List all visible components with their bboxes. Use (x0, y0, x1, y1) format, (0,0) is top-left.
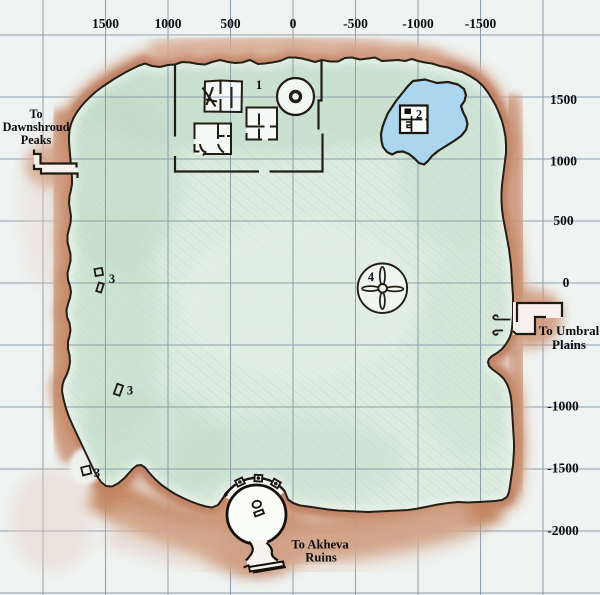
svg-text:To Akheva: To Akheva (291, 538, 349, 552)
svg-text:0: 0 (563, 275, 570, 290)
svg-text:1000: 1000 (550, 154, 577, 169)
svg-text:Plains: Plains (552, 337, 586, 352)
svg-text:1: 1 (256, 78, 262, 92)
svg-text:500: 500 (220, 16, 241, 31)
svg-text:-1000: -1000 (402, 16, 434, 31)
svg-text:2: 2 (416, 108, 422, 122)
svg-text:0: 0 (290, 16, 297, 31)
svg-text:To Umbral: To Umbral (539, 323, 600, 338)
svg-text:3: 3 (109, 272, 115, 286)
svg-text:3: 3 (127, 384, 133, 398)
svg-text:1500: 1500 (92, 16, 119, 31)
svg-text:Ruins: Ruins (305, 551, 337, 565)
svg-text:1000: 1000 (155, 16, 182, 31)
svg-text:-1500: -1500 (547, 461, 579, 476)
svg-text:-1000: -1000 (547, 399, 579, 414)
svg-text:To: To (29, 107, 42, 121)
svg-text:3: 3 (94, 466, 100, 480)
svg-text:500: 500 (553, 213, 574, 228)
svg-text:-2000: -2000 (547, 523, 579, 538)
svg-text:Dawnshroud: Dawnshroud (3, 120, 70, 134)
svg-text:Peaks: Peaks (21, 133, 52, 147)
svg-text:-1500: -1500 (465, 16, 497, 31)
svg-text:4: 4 (368, 270, 375, 284)
svg-text:1500: 1500 (550, 92, 577, 107)
svg-text:-500: -500 (343, 16, 368, 31)
